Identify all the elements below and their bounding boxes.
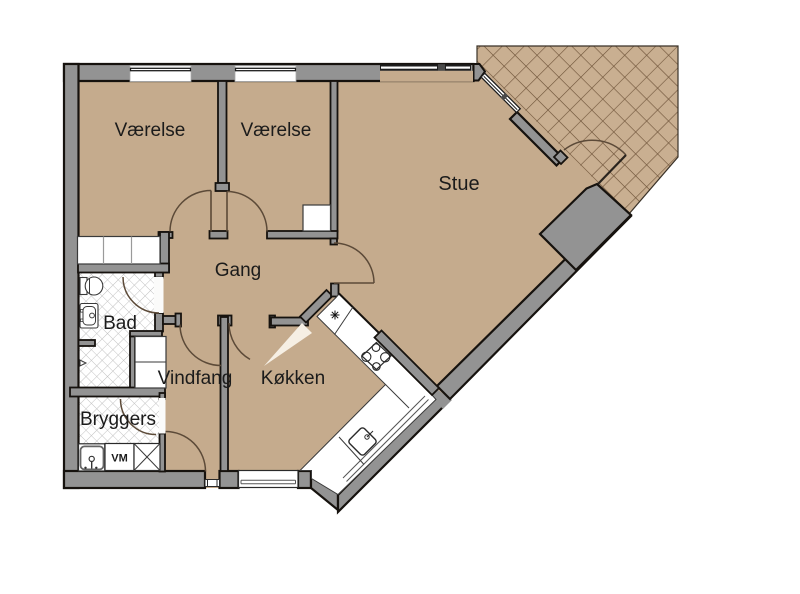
svg-text:VM: VM	[111, 453, 128, 465]
svg-text:Værelse: Værelse	[241, 120, 312, 141]
svg-text:Stue: Stue	[438, 173, 479, 195]
svg-text:Bryggers: Bryggers	[80, 409, 156, 430]
svg-text:Bad: Bad	[103, 313, 137, 334]
svg-text:Køkken: Køkken	[261, 368, 325, 389]
svg-text:Vindfang: Vindfang	[158, 368, 233, 389]
svg-text:Gang: Gang	[215, 260, 261, 281]
svg-text:Værelse: Værelse	[115, 120, 186, 141]
